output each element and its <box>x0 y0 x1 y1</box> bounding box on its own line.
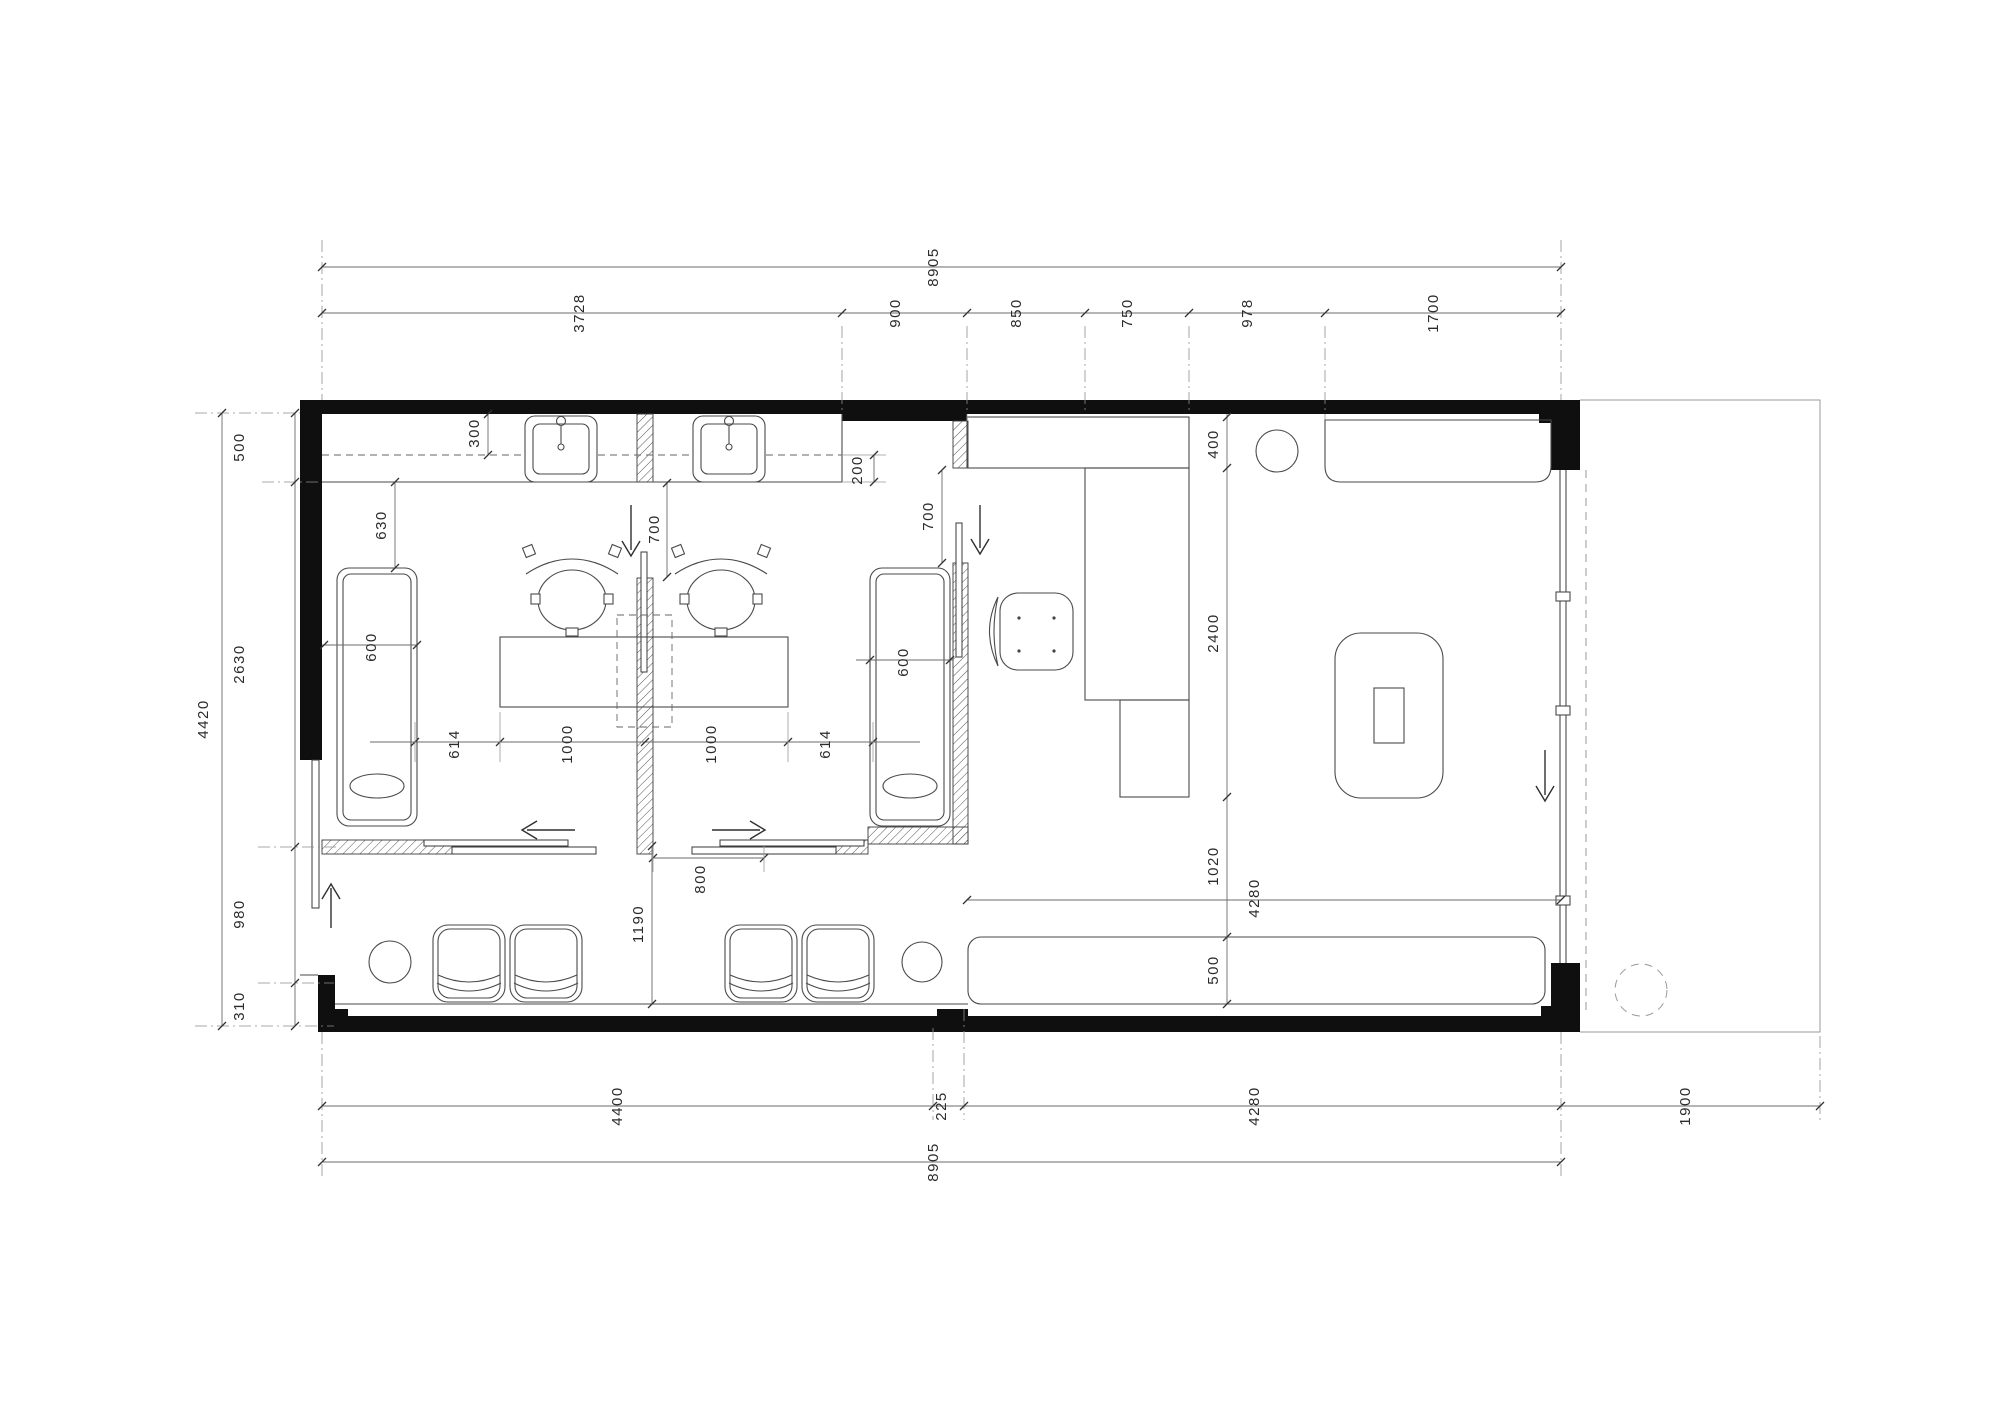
side-table-circle-1 <box>369 941 411 983</box>
dim-gap-630: 630 <box>373 510 390 540</box>
dim-top-750: 750 <box>1119 298 1136 328</box>
waiting-armchair-2 <box>510 925 582 1002</box>
couch-left <box>337 568 417 826</box>
dim-left-980: 980 <box>231 899 248 929</box>
storage-closet <box>967 417 1189 468</box>
floor-plan-page: 8905 3728 900 850 750 978 1700 4400 225 … <box>0 0 2000 1413</box>
dim-terrace-1900: 1900 <box>1677 1086 1694 1125</box>
dim-top-978: 978 <box>1239 298 1256 328</box>
sink-right-icon <box>693 416 765 482</box>
side-table-circle-2 <box>902 942 942 982</box>
window-wall <box>1556 470 1570 963</box>
dim-row-1000-right: 1000 <box>703 724 720 763</box>
door-arrow-center-icon <box>622 505 640 556</box>
dim-door-800: 800 <box>692 864 709 894</box>
dim-top-overall: 8905 <box>925 247 942 286</box>
dim-clear-1190: 1190 <box>630 905 647 943</box>
waiting-area <box>369 925 1545 1004</box>
office-area <box>967 417 1551 798</box>
dim-bench-500: 500 <box>1205 955 1222 985</box>
stool-circle <box>1256 430 1298 472</box>
door-arrow-bottom-left-icon <box>522 821 575 839</box>
dim-top-850: 850 <box>1008 298 1025 328</box>
floor-plan-canvas: 8905 3728 900 850 750 978 1700 4400 225 … <box>0 0 2000 1413</box>
wall-bottom-step-right <box>1541 1006 1551 1017</box>
desk-upper <box>1085 468 1189 700</box>
wall-top <box>300 400 1580 414</box>
sink-counter <box>322 414 842 482</box>
wall-top-step <box>842 414 967 421</box>
dim-bottom-4280: 4280 <box>1246 1086 1263 1125</box>
partition-center-upper <box>637 414 653 482</box>
door-leaf-right-room <box>956 523 962 657</box>
partition-right-return <box>868 827 968 844</box>
dim-door-right-700: 700 <box>920 501 937 531</box>
dim-closet-400: 400 <box>1205 429 1222 459</box>
wall-bottom-step-mid <box>937 1009 968 1017</box>
wall-bottom <box>318 1016 1558 1032</box>
dental-chair-left-icon <box>522 544 621 636</box>
axis-lines <box>195 240 1820 1176</box>
door-leaf-bottom-right-a <box>720 840 864 846</box>
planter-dashed-circle <box>1615 964 1667 1016</box>
couch-right <box>870 568 950 826</box>
terrace-outline <box>1580 400 1820 1032</box>
dim-bottom-overall: 8905 <box>925 1142 942 1181</box>
dim-bottom-225: 225 <box>933 1091 950 1121</box>
dim-left-overall: 4420 <box>195 699 212 738</box>
office-chair-icon <box>990 593 1074 670</box>
dim-desk-bench-1020: 1020 <box>1205 846 1222 885</box>
waiting-armchair-1 <box>433 925 505 1002</box>
partition-right-stub <box>953 421 968 468</box>
dim-row-614-right: 614 <box>817 729 834 759</box>
dim-counter-200: 200 <box>849 455 866 485</box>
reception-counter <box>1325 420 1551 482</box>
door-leaf-center <box>641 552 647 672</box>
dim-left-310: 310 <box>231 991 248 1021</box>
waiting-armchair-3 <box>725 925 797 1002</box>
wall-left <box>300 400 322 760</box>
dim-counter-300: 300 <box>466 418 483 448</box>
dim-top-3728: 3728 <box>571 293 588 332</box>
ottoman-table <box>1335 633 1443 798</box>
door-leaf-bottom-left-b <box>452 847 596 854</box>
wall-corner-bottom-right <box>1551 963 1580 1032</box>
bench-seat <box>968 937 1545 1004</box>
door-leaf-entrance <box>312 760 319 908</box>
desk-lower <box>1120 700 1189 797</box>
dim-top-900: 900 <box>887 298 904 328</box>
dim-row-1000-left: 1000 <box>559 724 576 763</box>
door-leaf-bottom-left-a <box>424 840 568 846</box>
dental-chair-right-icon <box>671 544 770 636</box>
door-arrow-window-icon <box>1536 750 1554 801</box>
window-mullion-1 <box>1556 592 1570 601</box>
dim-bottom-4400: 4400 <box>609 1086 626 1125</box>
dim-left-2630: 2630 <box>231 644 248 683</box>
door-arrow-bottom-right-icon <box>712 821 765 839</box>
dim-top-1700: 1700 <box>1425 293 1442 332</box>
terrace <box>1580 400 1820 1032</box>
dim-couch-left-600: 600 <box>363 632 380 662</box>
window-mullion-2 <box>1556 706 1570 715</box>
door-arrow-entrance-icon <box>322 884 340 928</box>
waiting-armchair-4 <box>802 925 874 1002</box>
dim-bench-4280: 4280 <box>1246 878 1263 917</box>
sink-left-icon <box>525 416 597 482</box>
door-arrow-right-room-icon <box>971 505 989 554</box>
wall-corner-top-right <box>1551 400 1580 470</box>
dim-left-500: 500 <box>231 432 248 462</box>
dim-row-614-left: 614 <box>446 729 463 759</box>
dim-couch-right-600: 600 <box>895 647 912 677</box>
dim-door-left-700: 700 <box>646 514 663 544</box>
dim-desk-2400: 2400 <box>1205 613 1222 652</box>
wall-top-right-notch <box>1539 414 1551 423</box>
